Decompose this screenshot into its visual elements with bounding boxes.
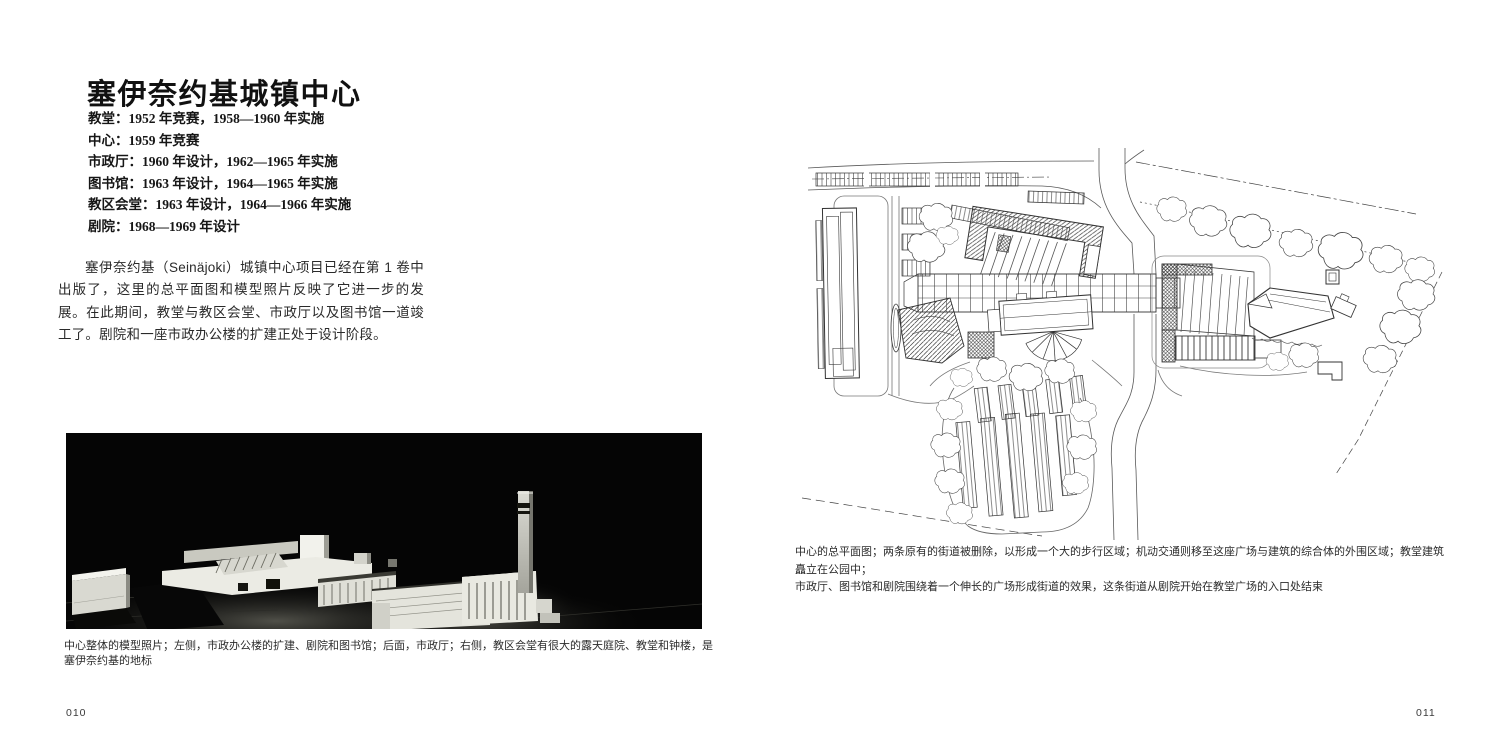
page-number-right: 011 xyxy=(1416,707,1436,719)
plan-office-extension xyxy=(968,332,994,358)
site-plan-caption: 中心的总平面图；两条原有的街道被删除，以形成一个大的步行区域；机动交通则移至这座… xyxy=(795,544,1451,597)
model-photo xyxy=(66,433,702,629)
date-line-parish-hall: 教区会堂：1963 年设计，1964—1966 年实施 xyxy=(88,194,351,216)
plan-left-office-block xyxy=(815,196,930,396)
date-line-center: 中心：1959 年竞赛 xyxy=(88,130,351,152)
intro-paragraph: 塞伊奈约基（Seinäjoki）城镇中心项目已经在第 1 卷中出版了，这里的总平… xyxy=(58,257,424,347)
plan-bell-tower xyxy=(1326,270,1339,284)
model-left-office-building xyxy=(72,568,136,629)
date-line-theatre: 剧院：1968—1969 年设计 xyxy=(88,216,351,238)
site-plan xyxy=(802,148,1456,540)
site-plan-caption-line2: 市政厅、图书馆和剧院围绕着一个伸长的广场形成街道的效果，这条街道从剧院开始在教堂… xyxy=(795,579,1451,597)
book-spread: 塞伊奈约基城镇中心 教堂：1952 年竞赛，1958—1960 年实施 中心：1… xyxy=(0,0,1499,750)
date-line-church: 教堂：1952 年竞赛，1958—1960 年实施 xyxy=(88,108,351,130)
plan-church-complex xyxy=(1152,256,1358,380)
site-plan-drawing xyxy=(802,148,1456,540)
plan-library-fan xyxy=(1025,330,1083,364)
model-photo-illustration xyxy=(66,433,702,629)
plan-churchyard-stripes xyxy=(1181,270,1248,336)
model-photo-caption: 中心整体的模型照片；左侧，市政办公楼的扩建、剧院和图书馆；后面，市政厅；右侧，教… xyxy=(64,639,716,669)
date-line-library: 图书馆：1963 年设计，1964—1965 年实施 xyxy=(88,173,351,195)
project-dates-list: 教堂：1952 年竞赛，1958—1960 年实施 中心：1959 年竞赛 市政… xyxy=(88,108,351,238)
site-plan-caption-line1: 中心的总平面图；两条原有的街道被删除，以形成一个大的步行区域；机动交通则移至这座… xyxy=(795,544,1451,579)
page-title: 塞伊奈约基城镇中心 xyxy=(87,79,362,111)
date-line-town-hall: 市政厅：1960 年设计，1962—1965 年实施 xyxy=(88,151,351,173)
page-number-left: 010 xyxy=(66,707,87,719)
plan-church-building xyxy=(1248,288,1334,338)
